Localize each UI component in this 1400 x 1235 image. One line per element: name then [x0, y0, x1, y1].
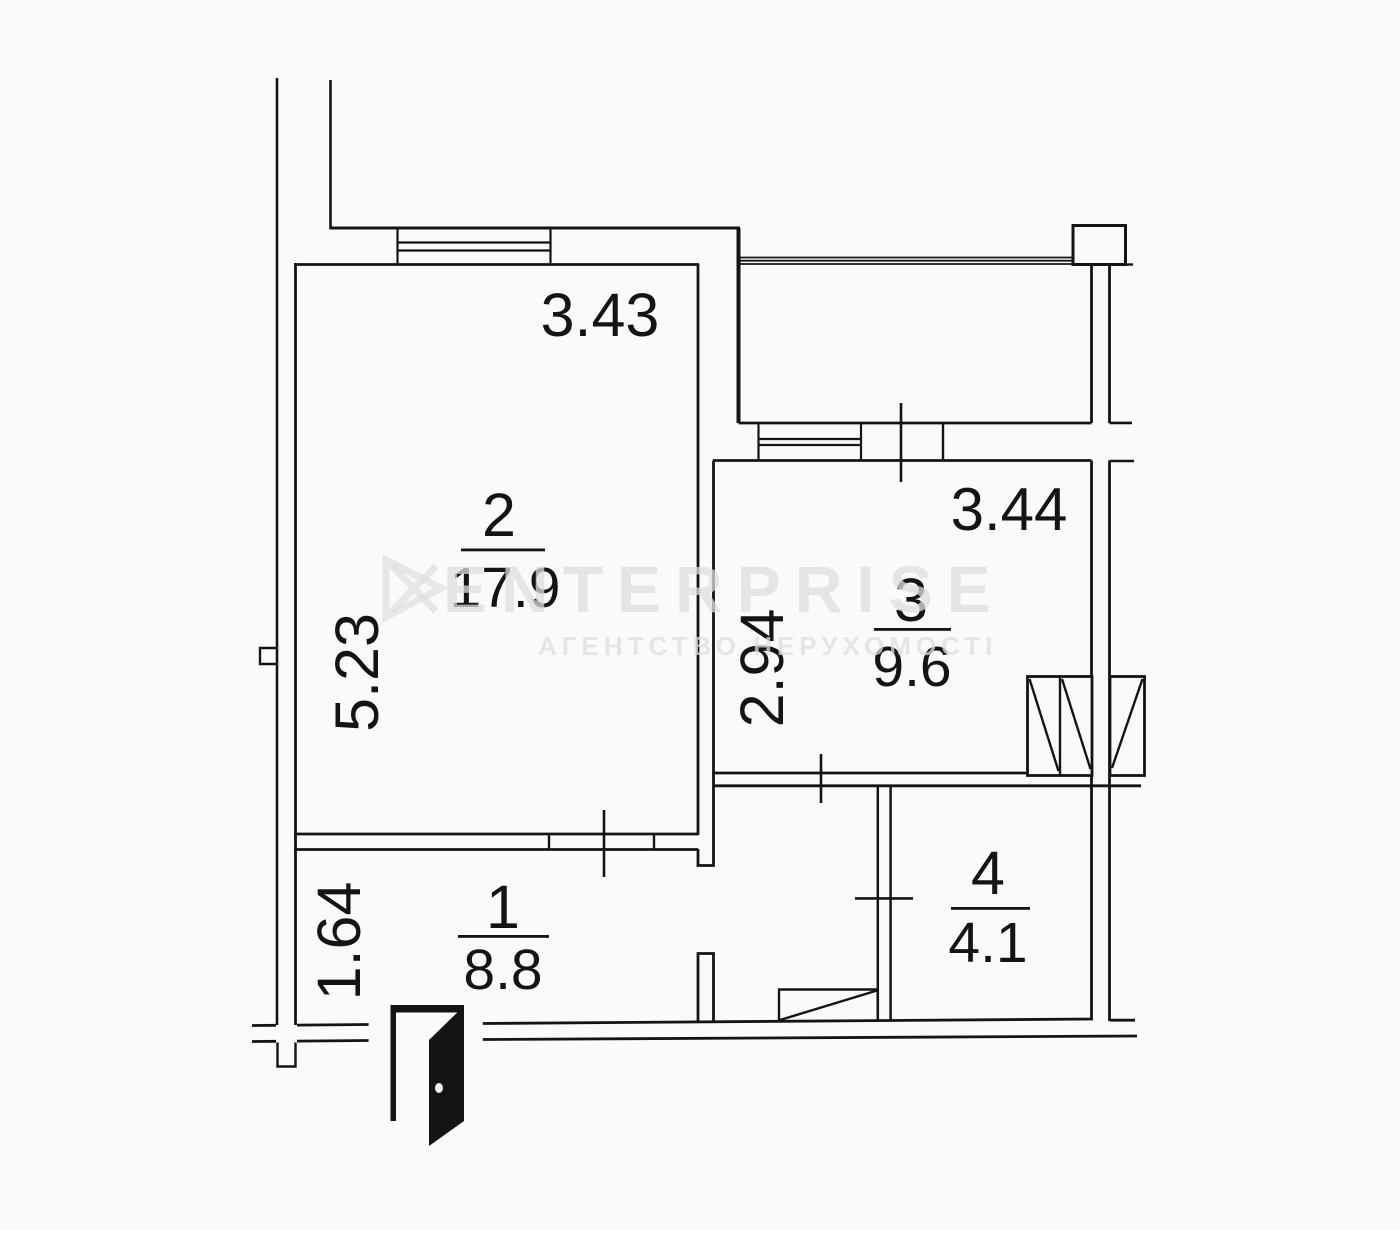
svg-text:5.23: 5.23 — [323, 613, 391, 732]
svg-text:8.8: 8.8 — [463, 938, 542, 1002]
svg-text:2.94: 2.94 — [728, 609, 796, 728]
svg-text:4: 4 — [971, 839, 1005, 907]
svg-text:АГЕНТСТВО НЕРУХОМОСТІ: АГЕНТСТВО НЕРУХОМОСТІ — [538, 631, 997, 661]
svg-text:1.64: 1.64 — [305, 882, 373, 1001]
svg-text:3.44: 3.44 — [951, 476, 1068, 543]
svg-text:3.43: 3.43 — [541, 281, 660, 349]
svg-text:4.1: 4.1 — [948, 911, 1027, 975]
svg-text:1: 1 — [486, 873, 520, 941]
svg-text:ENTERPRISE: ENTERPRISE — [443, 552, 1005, 626]
svg-text:2: 2 — [482, 481, 516, 549]
